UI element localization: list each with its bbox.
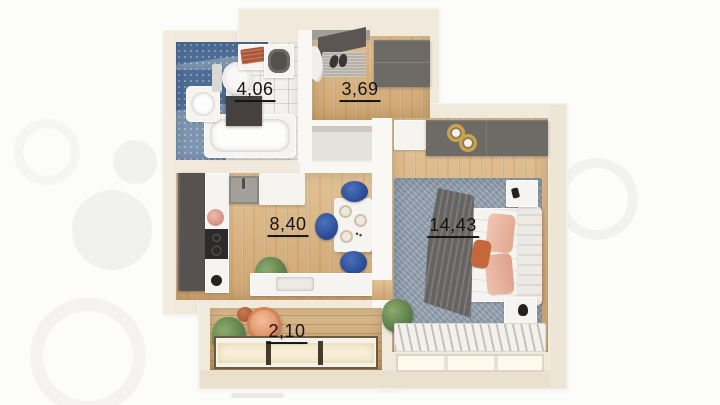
- washing-machine-door: [268, 49, 290, 73]
- doorway-kitchen-bedroom: [372, 280, 392, 300]
- kitchen-window-counter: [250, 273, 392, 296]
- window-mullion: [318, 341, 323, 365]
- swipe-indicator-bar: [231, 393, 284, 398]
- pink-bowl: [207, 209, 224, 226]
- watermark-circle-icon: [72, 190, 152, 270]
- bedroom-wardrobe: [426, 120, 548, 156]
- window-mullion: [444, 356, 448, 370]
- room-label-bathroom: 4,06: [234, 80, 275, 102]
- wardrobe-panel-line: [486, 120, 487, 156]
- sink-basin: [191, 92, 215, 116]
- nightstand: [506, 180, 538, 207]
- bedroom-window: [396, 354, 544, 372]
- dining-chair: [315, 213, 338, 240]
- plate: [339, 205, 352, 218]
- watermark-ring-icon: [30, 298, 146, 405]
- wall-bathroom-hallway: [298, 30, 312, 163]
- exterior-wall-bottom: [200, 370, 566, 388]
- plate: [340, 230, 353, 243]
- kitchen-tall-cabinet: [178, 173, 205, 291]
- bedroom-dresser: [394, 120, 426, 150]
- nightstand-lamp: [518, 304, 528, 316]
- kitchen-sink-unit: [229, 176, 259, 204]
- exterior-wall-left: [163, 32, 174, 313]
- bed-headboard: [518, 206, 542, 306]
- wall-kitchen-bedroom: [372, 118, 392, 280]
- dining-table: [334, 198, 372, 252]
- room-label-hallway: 3,69: [339, 80, 380, 102]
- watermark-ring-icon: [556, 158, 638, 240]
- toilet-tank: [212, 64, 222, 92]
- hallway-wardrobe: [374, 40, 430, 87]
- cutlery: [355, 231, 363, 238]
- window-mullion: [494, 356, 498, 370]
- nightstand: [504, 297, 537, 326]
- watermark-ring-icon: [14, 119, 80, 185]
- balcony-window-glass: [218, 343, 374, 363]
- watermark-circle-icon: [113, 140, 157, 184]
- faucet: [242, 178, 245, 189]
- kitchen-bottle: [211, 275, 222, 286]
- washing-machine: [264, 44, 294, 78]
- dining-chair: [341, 181, 368, 202]
- plate: [354, 214, 367, 227]
- decor-plate-gold: [459, 134, 477, 152]
- kitchen-high-cabinet: [303, 126, 372, 160]
- room-label-balcony: 2,10: [266, 322, 307, 344]
- room-label-bedroom: 14,43: [427, 216, 479, 238]
- nightstand-decor: [511, 187, 520, 198]
- bedroom-radiator: [394, 323, 546, 352]
- window-mullion: [266, 341, 271, 365]
- room-label-kitchen: 8,40: [267, 215, 308, 237]
- floorplan-image: 4,06 3,69 8,40 14,43 2,10: [0, 0, 720, 405]
- dining-chair: [340, 251, 367, 274]
- cooktop: [205, 229, 228, 259]
- exterior-wall-right: [550, 105, 566, 388]
- counter-tray: [276, 277, 314, 291]
- wardrobe-panel-line: [374, 62, 430, 63]
- kitchen-upper-cabinets: [259, 173, 305, 205]
